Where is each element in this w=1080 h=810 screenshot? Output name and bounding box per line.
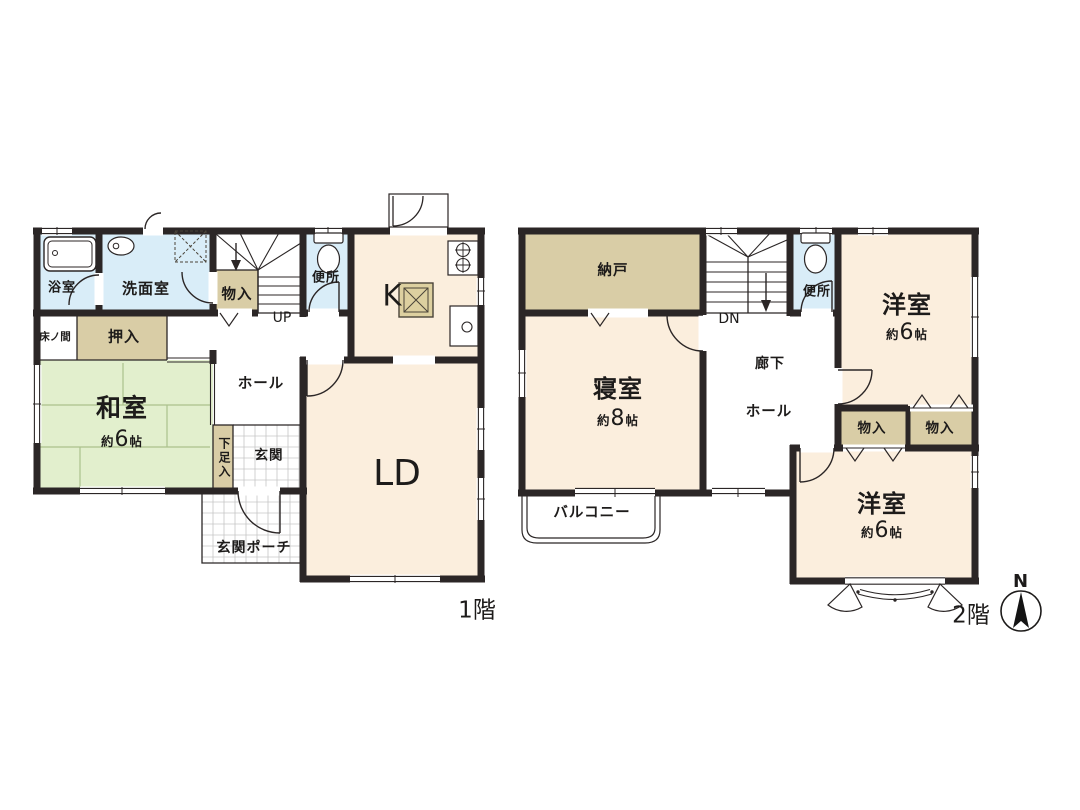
size-prefix: 約 bbox=[861, 525, 875, 540]
label-western-lower: 洋室 bbox=[857, 492, 907, 516]
label-western-upper: 洋室 bbox=[882, 293, 932, 317]
label-hall-1f: ホール bbox=[238, 377, 285, 392]
label-western-lower-size: 約6帖 bbox=[861, 520, 903, 542]
size-unit: 帖 bbox=[890, 525, 904, 540]
label-closet-right: 物入 bbox=[926, 422, 955, 436]
label-japanese-room: 和室 bbox=[96, 396, 148, 421]
label-entrance: 玄関 bbox=[255, 449, 284, 463]
label-washroom: 洗面室 bbox=[122, 282, 170, 297]
size-unit: 帖 bbox=[626, 413, 640, 428]
size-prefix: 約 bbox=[597, 413, 611, 428]
label-closet-left: 物入 bbox=[858, 422, 887, 436]
label-oshiire: 押入 bbox=[108, 330, 140, 345]
label-bedroom-size: 約8帖 bbox=[597, 408, 639, 430]
stove-icon bbox=[448, 241, 478, 275]
label-balcony: バルコニー bbox=[553, 506, 630, 521]
label-western-upper-size: 約6帖 bbox=[886, 322, 928, 344]
bathtub-icon bbox=[44, 237, 96, 271]
sink-icon bbox=[450, 306, 478, 346]
kitchen-back-door bbox=[389, 194, 448, 227]
size-value: 6 bbox=[900, 320, 915, 345]
size-value: 8 bbox=[611, 406, 626, 431]
label-toilet-2f: 便所 bbox=[803, 286, 831, 299]
label-storage-room: 納戸 bbox=[598, 264, 629, 279]
label-japanese-room-size: 約6帖 bbox=[101, 429, 143, 451]
kitchen-table-icon bbox=[399, 283, 433, 317]
bay-window bbox=[828, 584, 962, 611]
size-unit: 帖 bbox=[130, 434, 144, 449]
label-corridor: 廊下 bbox=[755, 357, 785, 371]
stairs-down bbox=[703, 231, 790, 313]
label-stairs-up: UP bbox=[273, 311, 292, 325]
front-door-arc bbox=[238, 491, 280, 533]
label-shoe-closet: 下足入 bbox=[218, 437, 230, 479]
size-unit: 帖 bbox=[915, 327, 929, 342]
washbasin-icon bbox=[108, 237, 134, 255]
floorplan-drawing bbox=[0, 0, 1080, 810]
label-entrance-porch: 玄関ポーチ bbox=[217, 541, 292, 555]
label-compass-north: N bbox=[1013, 573, 1029, 591]
size-prefix: 約 bbox=[101, 434, 115, 449]
label-living-dining: LD bbox=[373, 456, 421, 492]
label-floor2: 2階 bbox=[952, 605, 990, 628]
label-bathroom: 浴室 bbox=[48, 282, 76, 295]
size-value: 6 bbox=[115, 427, 130, 452]
room-bedroom bbox=[522, 313, 703, 493]
label-hall-2f: ホール bbox=[746, 405, 793, 420]
label-closet-1f: 物入 bbox=[222, 288, 253, 303]
size-prefix: 約 bbox=[886, 327, 900, 342]
label-toilet-1f: 便所 bbox=[312, 272, 340, 285]
label-kitchen: K bbox=[382, 282, 401, 311]
stairs-down-arrow bbox=[761, 300, 771, 312]
compass-icon bbox=[1001, 591, 1041, 631]
room-japanese bbox=[37, 360, 213, 491]
floorplan-page: 浴室 洗面室 物入 便所 UP K 床ノ間 押入 和室 約6帖 ホール 下足入 … bbox=[0, 0, 1080, 810]
label-bedroom: 寝室 bbox=[593, 377, 643, 401]
label-floor1: 1階 bbox=[458, 600, 496, 623]
compass-needle bbox=[1013, 592, 1029, 628]
label-tokonoma: 床ノ間 bbox=[39, 332, 71, 343]
label-stairs-down: DN bbox=[718, 312, 739, 326]
size-value: 6 bbox=[875, 518, 890, 543]
